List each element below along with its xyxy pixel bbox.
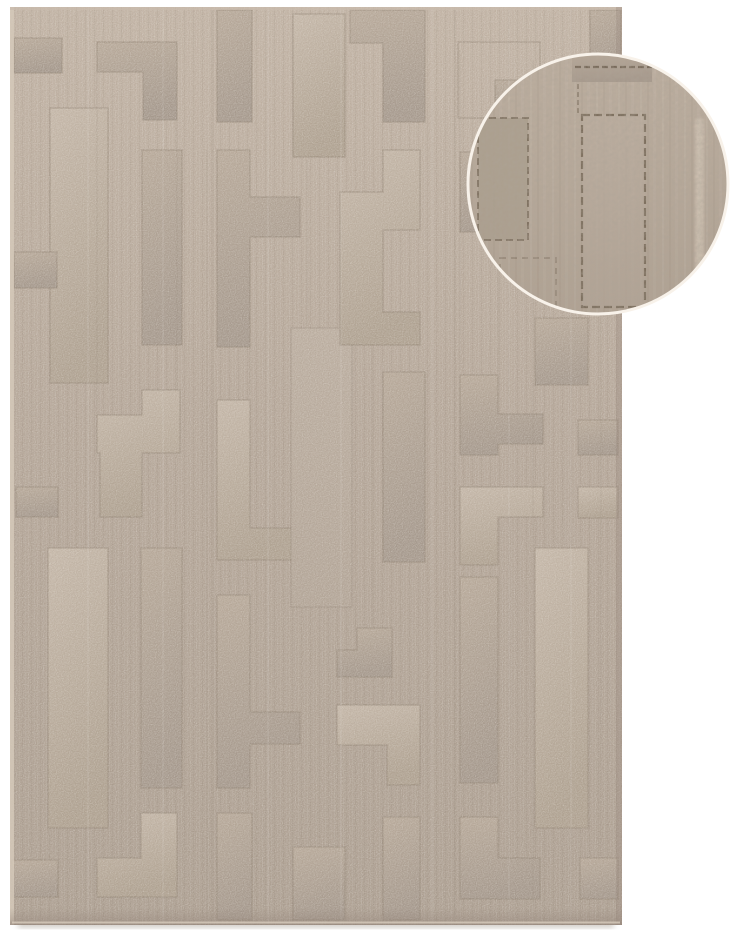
rug-left-selvedge	[10, 7, 14, 925]
rug-top-edge	[10, 7, 622, 10]
rug-product-image	[0, 0, 740, 940]
zoom-detail-inset	[468, 52, 728, 318]
product-photo	[0, 0, 740, 940]
